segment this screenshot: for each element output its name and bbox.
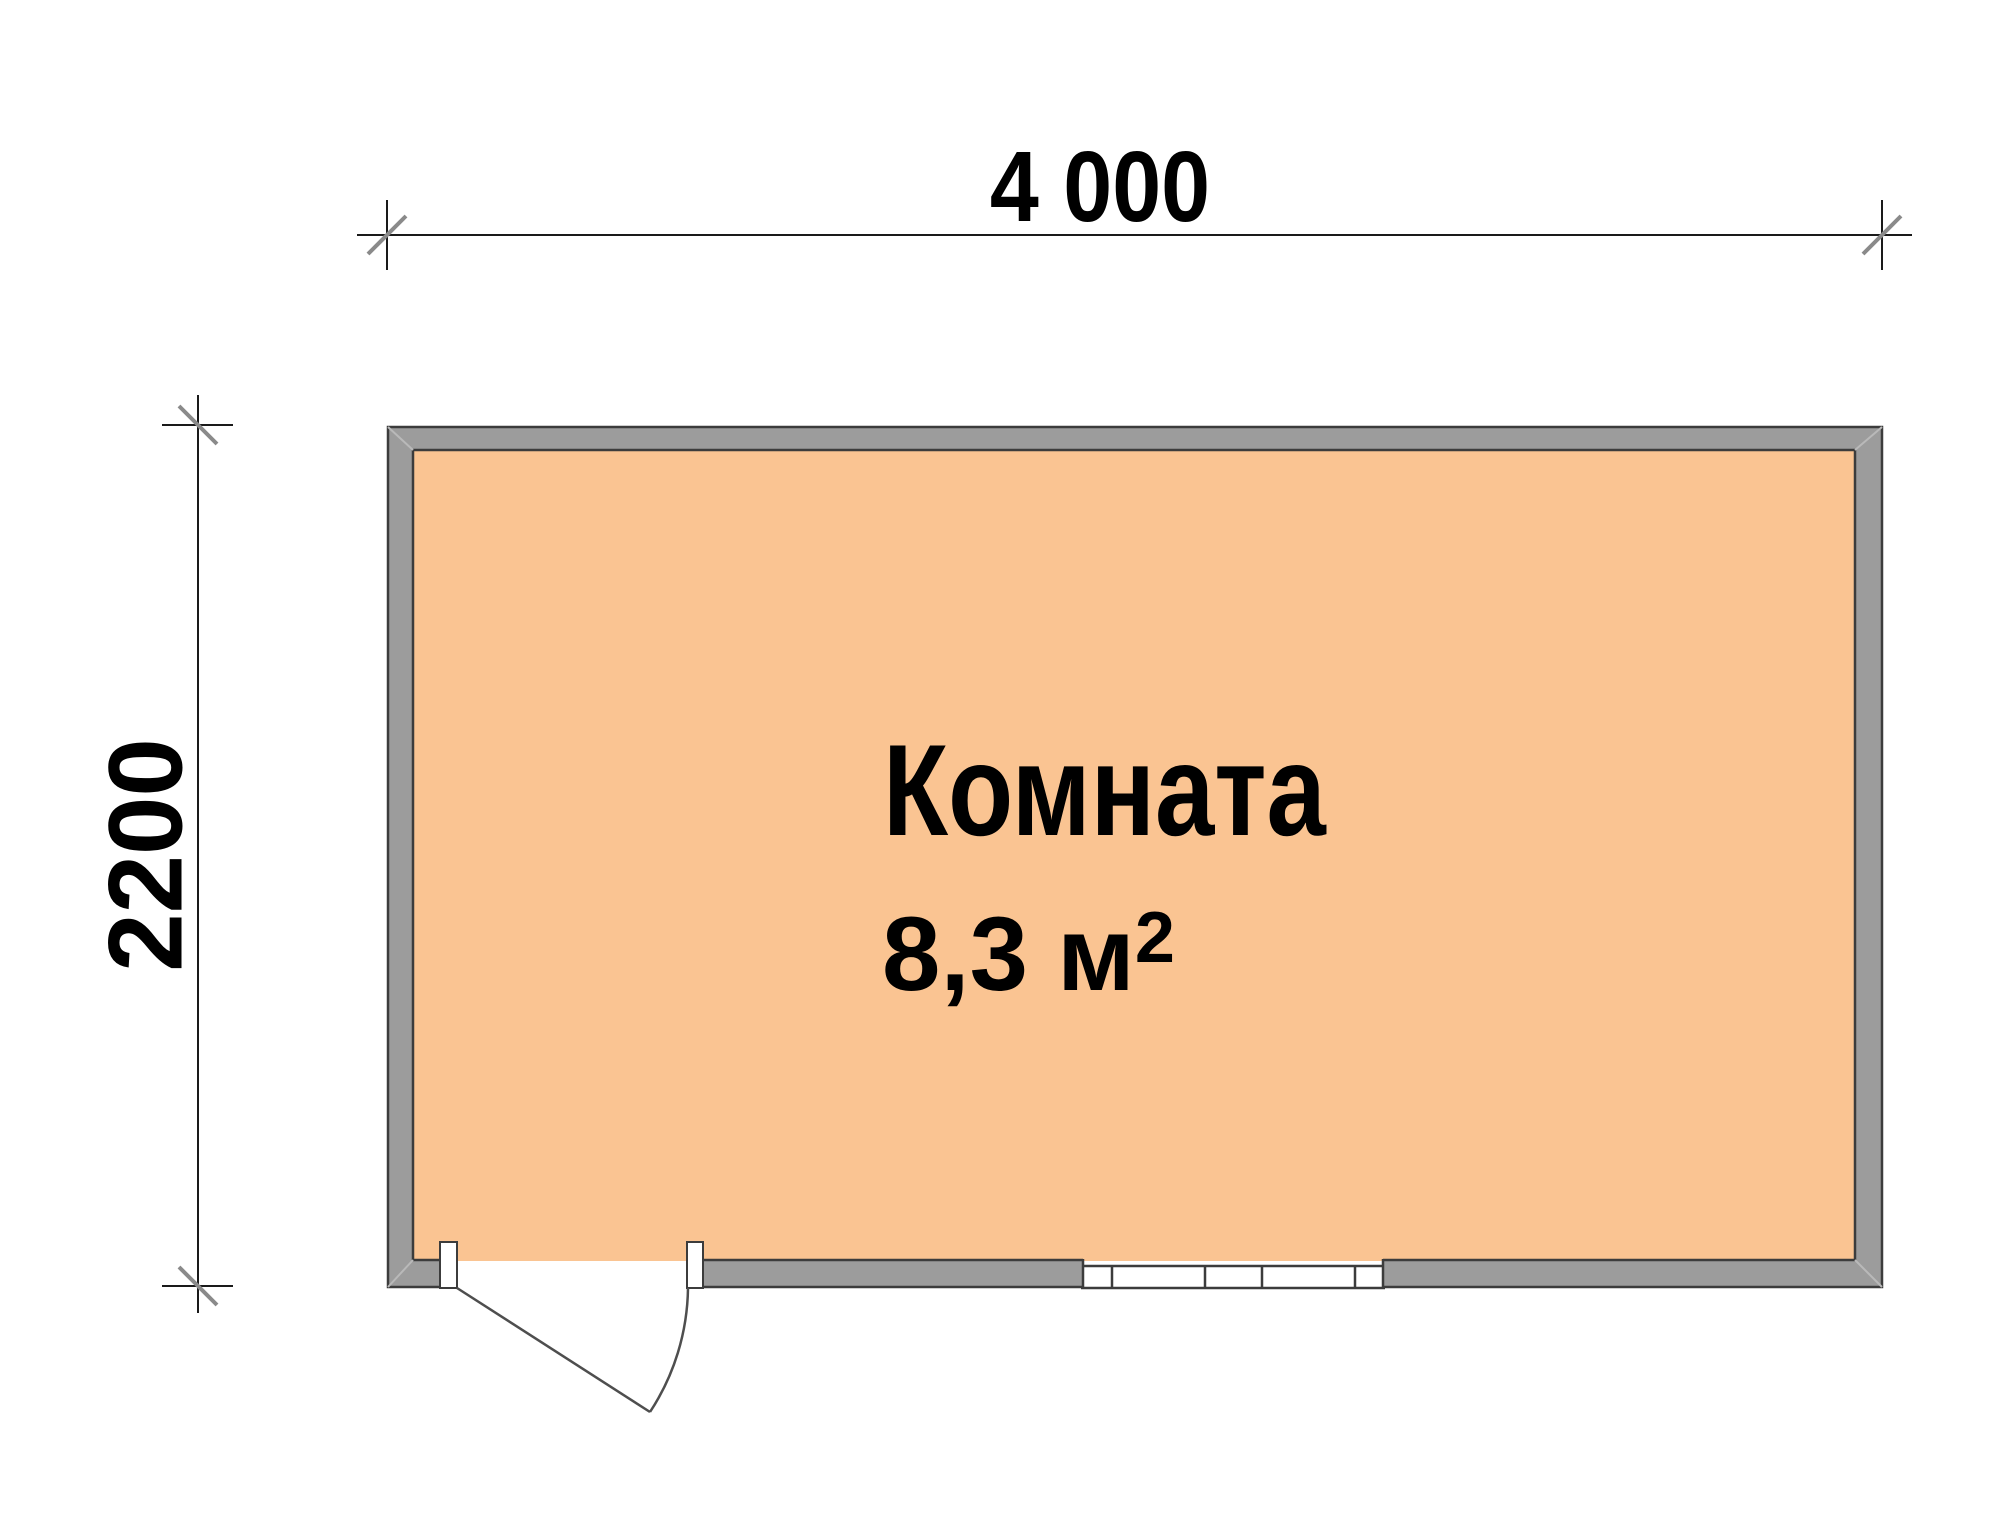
height-dimension-label: 2200 [94,738,199,972]
door-jamb-right [687,1242,703,1288]
door-leaf [457,1288,650,1412]
room-area-label: 8,3 м2 [882,902,1175,1007]
room-name-label: Комната [883,725,1326,855]
room-area-value: 8,3 м [882,896,1135,1013]
door-swing-arc [650,1288,688,1412]
door-jamb-left [440,1242,457,1288]
width-dimension-label: 4 000 [924,137,1276,237]
door-swing [457,1288,688,1412]
door-opening [457,1258,687,1293]
room-area-superscript: 2 [1135,898,1175,978]
door-opening-floor-edge [457,1250,687,1261]
floor-plan: 4 000 2200 Комната 8,3 м2 [0,0,2000,1540]
window-opening-floor-edge [1083,1250,1383,1261]
